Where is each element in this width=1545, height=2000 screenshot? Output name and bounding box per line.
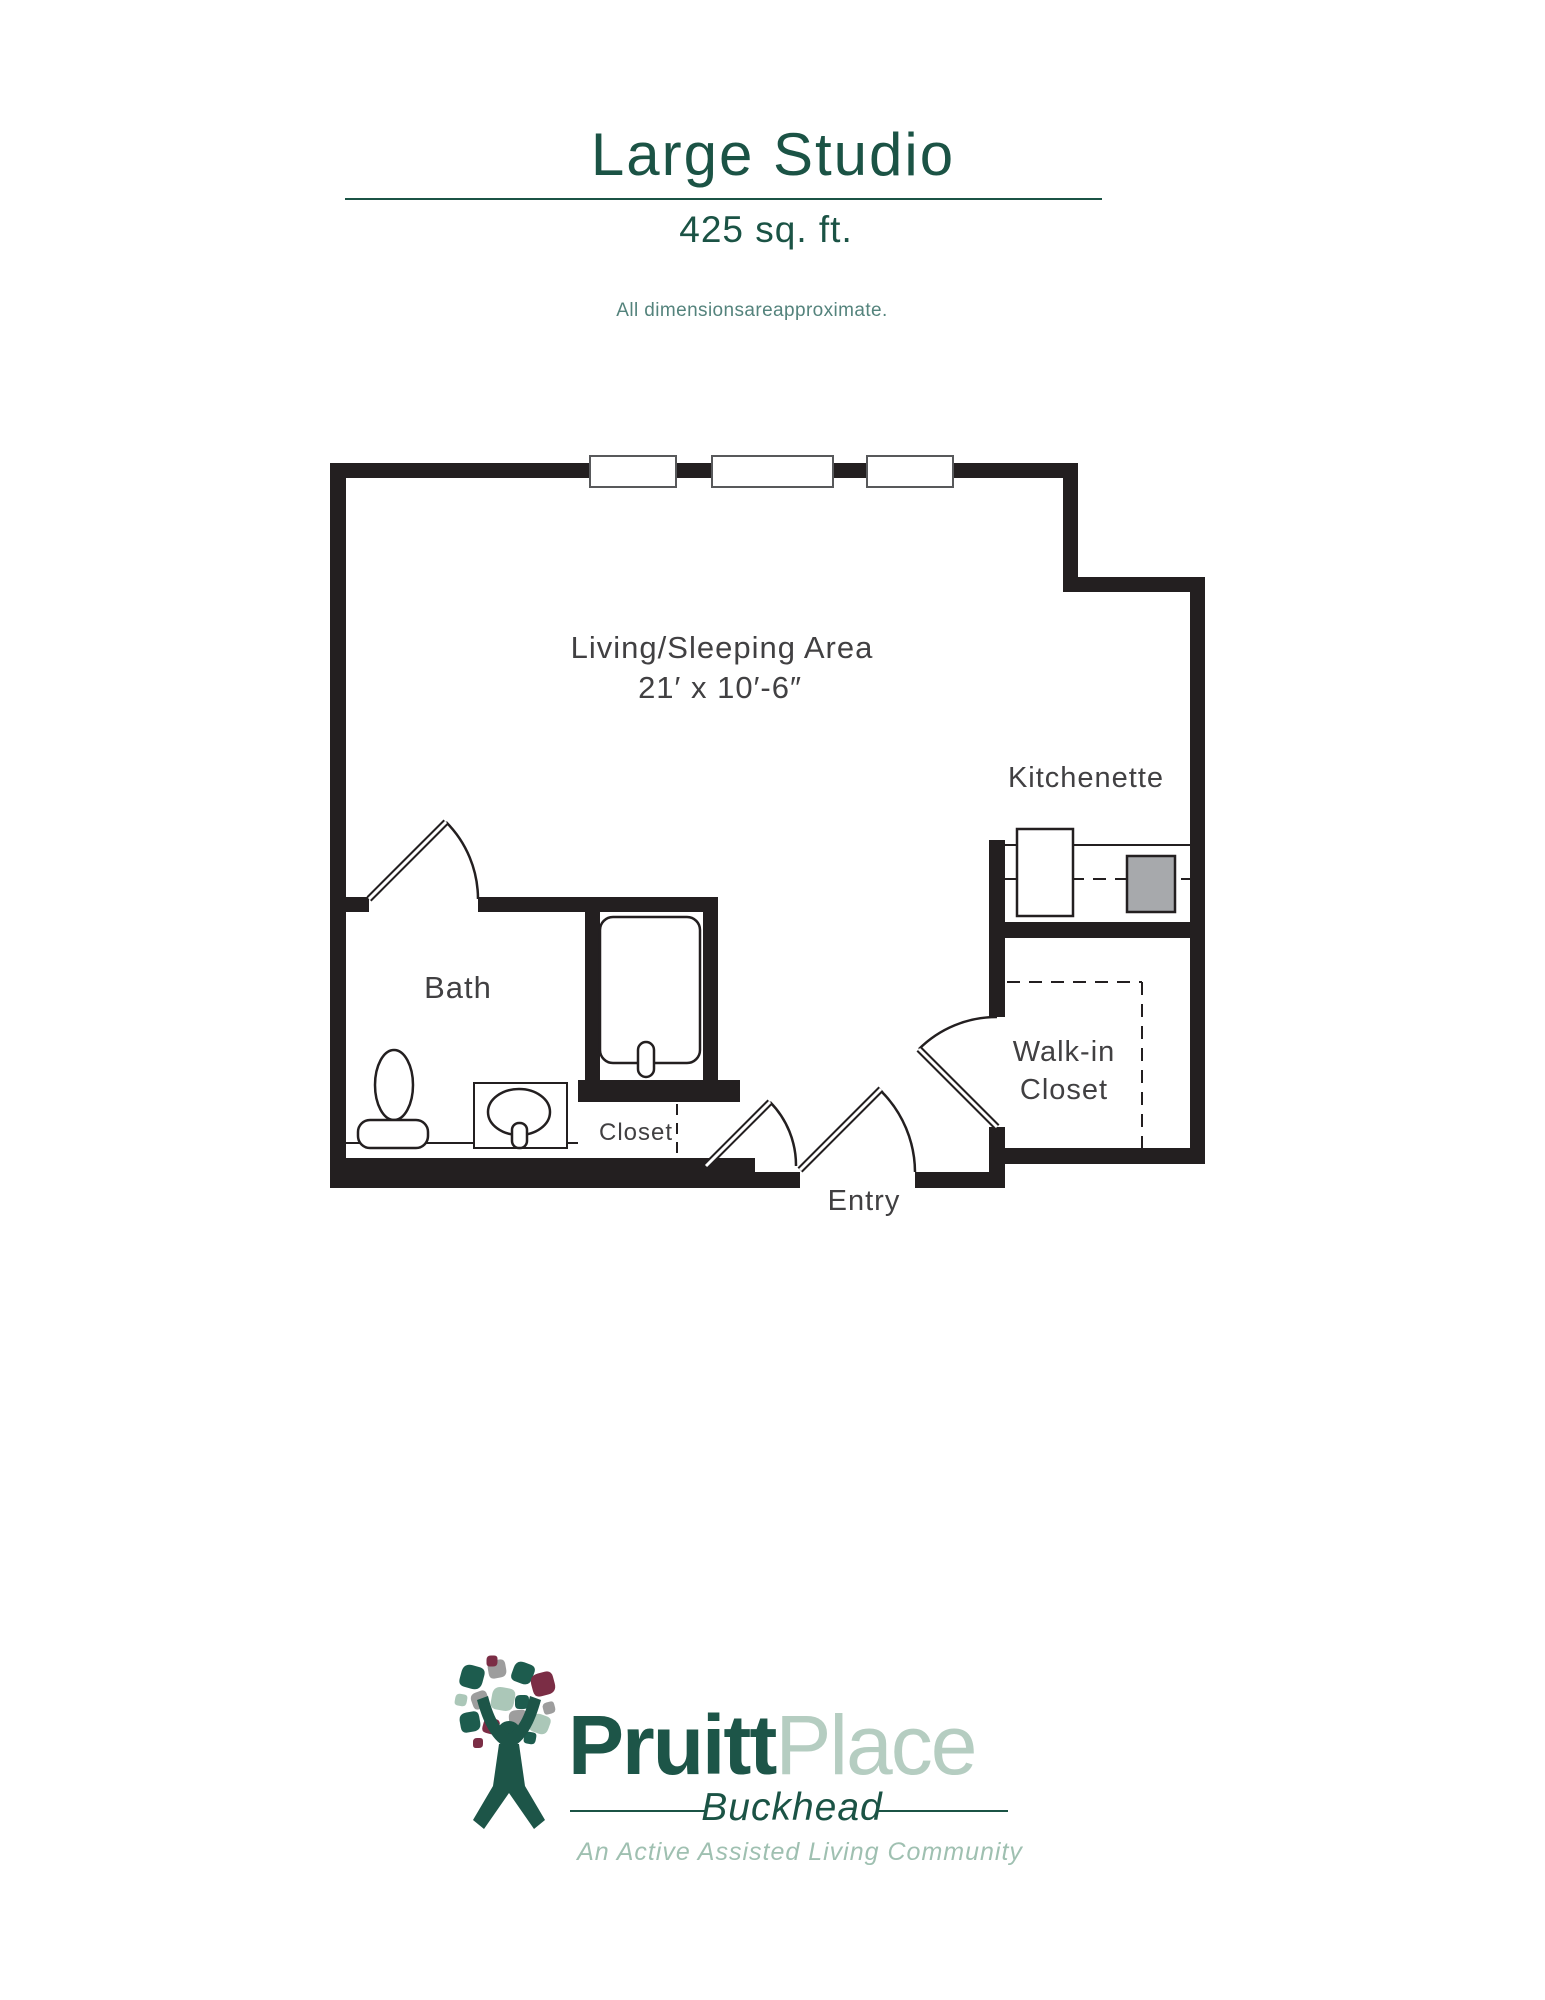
wall-tub-alcove-bottom — [578, 1080, 740, 1102]
living-area-label: Living/Sleeping Area — [571, 630, 874, 666]
wall-tub-alcove-right — [703, 912, 718, 1080]
window-3 — [867, 456, 953, 487]
bath-fixtures — [346, 917, 700, 1148]
floor-plan-page: Large Studio 425 sq. ft. All dimensionsa… — [0, 0, 1545, 2000]
closet-door — [706, 1102, 796, 1166]
walkin-closet-door — [919, 1017, 997, 1127]
wall-kitchenette-partition — [989, 840, 1005, 1017]
refrigerator-appliance — [1127, 856, 1175, 912]
windows — [590, 456, 953, 487]
brand-name-pruitt: Pruitt — [568, 1698, 775, 1792]
wall-right — [1190, 577, 1205, 1164]
walkin-door-swing-arc — [919, 1017, 997, 1049]
window-1 — [590, 456, 676, 487]
wall-bath-bottom — [330, 1158, 755, 1188]
closet-label: Closet — [599, 1119, 673, 1147]
wall-entry-bottom-left — [755, 1172, 800, 1188]
buckhead-rule-right — [878, 1810, 1008, 1812]
wall-walkin-bottom — [1005, 1148, 1205, 1164]
walkin-closet-label-line2: Closet — [1020, 1074, 1108, 1107]
buckhead-rule-left — [570, 1810, 706, 1812]
wall-kitchenette-bottom — [1005, 922, 1190, 938]
walkin-closet-label-line1: Walk-in — [1013, 1036, 1116, 1069]
toilet-tank — [358, 1120, 428, 1148]
bathtub-faucet — [638, 1042, 654, 1077]
wall-notch-horizontal — [1063, 577, 1205, 592]
closet-door-swing-arc — [770, 1102, 796, 1166]
brand-name-place: Place — [775, 1698, 975, 1792]
brand-name: PruittPlace — [568, 1703, 975, 1787]
living-area-dimensions: 21′ x 10′-6″ — [638, 670, 802, 706]
bath-door-swing-arc — [446, 822, 478, 899]
entry-label: Entry — [828, 1185, 901, 1218]
bath-door — [369, 822, 478, 899]
wall-left — [330, 463, 346, 1188]
brand-location: Buckhead — [701, 1786, 882, 1830]
kitchenette-fixtures — [1005, 829, 1190, 916]
wall-bath-top — [478, 897, 718, 912]
window-2 — [712, 456, 833, 487]
sink-faucet — [512, 1123, 527, 1148]
entry-door — [800, 1089, 915, 1172]
wall-tub-alcove-left — [585, 912, 600, 1080]
kitchenette-label: Kitchenette — [1008, 762, 1164, 795]
wall-top — [330, 463, 1078, 478]
toilet-bowl — [375, 1050, 413, 1120]
bath-label: Bath — [424, 970, 492, 1006]
wall-entry-bottom-right — [915, 1172, 1005, 1188]
range-appliance — [1017, 829, 1073, 916]
entry-door-swing-arc — [881, 1091, 915, 1172]
wall-notch-vertical — [1063, 463, 1078, 592]
bathtub — [600, 917, 700, 1063]
wall-bath-top-stub — [330, 897, 369, 912]
brand-tagline: An Active Assisted Living Community — [577, 1838, 1023, 1867]
logo-tree-icon — [454, 1656, 557, 1830]
